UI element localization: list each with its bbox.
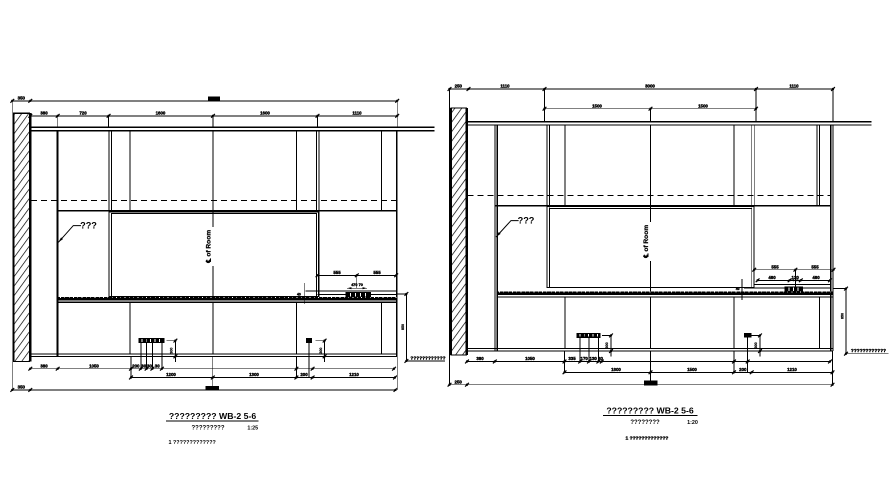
svg-text:1200: 1200	[166, 372, 176, 377]
svg-text:200: 200	[300, 372, 308, 377]
svg-text:1050: 1050	[525, 356, 535, 361]
svg-text:470 70: 470 70	[351, 283, 363, 287]
svg-text:200: 200	[132, 363, 140, 368]
svg-text:460: 460	[812, 275, 820, 280]
svg-text:?????????: ?????????	[192, 425, 225, 431]
svg-text:1:25: 1:25	[247, 425, 258, 431]
svg-text:1600: 1600	[156, 111, 166, 116]
svg-text:300: 300	[754, 342, 758, 348]
svg-text:1600: 1600	[260, 111, 270, 116]
svg-text:170: 170	[581, 356, 589, 361]
svg-text:1210: 1210	[349, 372, 359, 377]
svg-text:380: 380	[476, 356, 484, 361]
svg-text:460: 460	[768, 275, 776, 280]
svg-text:5000: 5000	[209, 97, 219, 102]
svg-text:3000: 3000	[645, 84, 655, 89]
svg-text:555: 555	[771, 264, 779, 269]
svg-text:300: 300	[170, 348, 174, 354]
svg-text:5000: 5000	[646, 381, 656, 386]
svg-text:40: 40	[736, 287, 740, 291]
svg-text:335: 335	[568, 356, 576, 361]
svg-text:????????? WB-2 5-6: ????????? WB-2 5-6	[606, 406, 694, 416]
svg-text:850: 850	[401, 324, 405, 330]
svg-text:???: ???	[518, 215, 535, 225]
svg-text:????????????: ????????????	[410, 355, 445, 361]
svg-text:1500: 1500	[687, 367, 697, 372]
svg-text:℄ of Room: ℄ of Room	[642, 225, 650, 259]
svg-text:1110: 1110	[352, 111, 362, 116]
svg-text:1210: 1210	[787, 367, 797, 372]
svg-text:1500: 1500	[592, 103, 602, 108]
svg-text:120: 120	[792, 275, 800, 280]
svg-text:1050: 1050	[89, 363, 99, 368]
svg-text:5000: 5000	[207, 386, 217, 391]
svg-text:380: 380	[40, 111, 48, 116]
svg-text:350: 350	[18, 385, 26, 390]
svg-text:30: 30	[155, 363, 160, 368]
svg-text:1110: 1110	[789, 84, 799, 89]
svg-text:30: 30	[147, 363, 152, 368]
svg-text:1:20: 1:20	[687, 420, 698, 426]
svg-text:????????? WB-2 5-6: ????????? WB-2 5-6	[169, 411, 257, 421]
svg-text:380: 380	[40, 363, 48, 368]
svg-text:1 ?????????????: 1 ?????????????	[169, 440, 216, 446]
svg-text:350: 350	[18, 96, 26, 101]
svg-text:30: 30	[141, 363, 146, 368]
svg-text:200: 200	[739, 367, 747, 372]
svg-text:555: 555	[373, 270, 381, 275]
svg-text:250: 250	[455, 379, 463, 384]
svg-text:1800: 1800	[611, 367, 621, 372]
svg-text:555: 555	[811, 264, 819, 269]
svg-text:555: 555	[333, 270, 341, 275]
svg-text:1110: 1110	[500, 84, 510, 89]
svg-text:720: 720	[79, 111, 87, 116]
svg-text:300: 300	[319, 348, 323, 354]
svg-text:1500: 1500	[698, 103, 708, 108]
svg-text:40: 40	[297, 293, 301, 297]
svg-text:????????????: ????????????	[851, 348, 886, 354]
svg-text:???: ???	[80, 220, 97, 230]
svg-text:300: 300	[605, 342, 609, 348]
svg-text:30: 30	[598, 356, 603, 361]
svg-text:1 ?????????????: 1 ?????????????	[626, 436, 669, 442]
svg-text:????????: ????????	[630, 420, 660, 426]
svg-text:850: 850	[841, 313, 845, 319]
svg-text:℄ of Room: ℄ of Room	[205, 230, 213, 264]
svg-text:130: 130	[590, 356, 598, 361]
svg-text:250: 250	[455, 84, 463, 89]
svg-text:1300: 1300	[249, 372, 259, 377]
